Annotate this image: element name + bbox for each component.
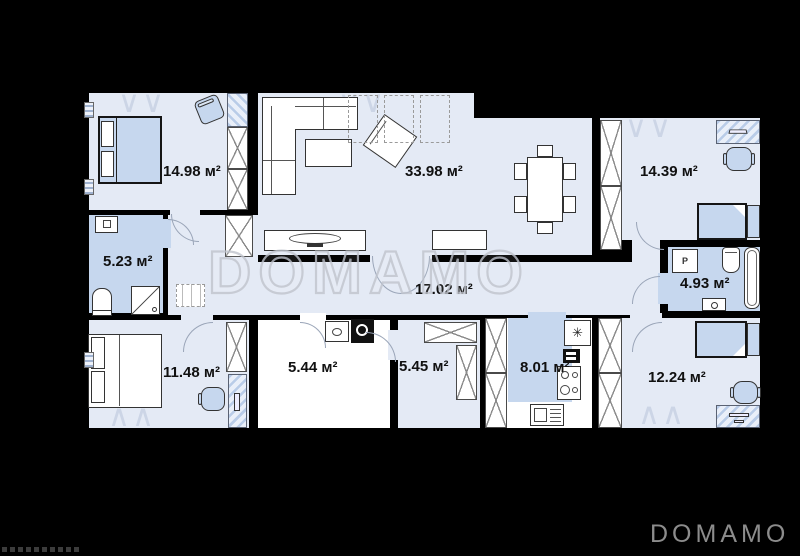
wardrobe-icon	[485, 318, 507, 373]
wardrobe-icon	[598, 318, 622, 373]
carpet-zone	[420, 95, 450, 143]
toilet-tank	[92, 310, 112, 316]
chair-icon	[514, 196, 527, 213]
wardrobe-icon	[600, 120, 622, 186]
double-bed-icon	[98, 116, 162, 184]
room-area-label: 14.39 м²	[640, 163, 698, 180]
chair-icon	[563, 196, 576, 213]
desk-icon	[228, 374, 247, 428]
fine-print-watermark	[2, 547, 80, 552]
double-bed-icon	[88, 334, 162, 408]
window-sill-hatch	[227, 93, 248, 127]
radiator-icon	[84, 352, 94, 368]
radiator-icon	[84, 102, 94, 118]
wardrobe-icon	[227, 169, 248, 210]
room-area-label: 4.93 м²	[680, 275, 729, 292]
chair-icon	[563, 163, 576, 180]
coffee-table-icon	[305, 139, 352, 167]
carpet-zone	[348, 95, 378, 143]
room-area-label: 5.45 м²	[399, 358, 448, 375]
dining-table-icon	[527, 157, 563, 222]
room-area-label: 5.44 м²	[288, 359, 337, 376]
wardrobe-icon	[600, 186, 622, 250]
watermark-text: DOMAMO	[208, 238, 530, 307]
room-area-label: 8.01 м²	[520, 359, 569, 376]
desk-icon	[716, 405, 760, 428]
bathtub-icon	[744, 247, 760, 309]
desk-icon	[716, 120, 760, 144]
chair-icon	[514, 163, 527, 180]
toilet-icon	[722, 247, 740, 273]
floor-plan: ∨∨ ∨∨ ∨∨ ∧∧ ∧∧ 14.98 м² 5.23 м²	[0, 0, 800, 556]
wardrobe-icon	[456, 345, 477, 400]
kitchen-sink-icon	[530, 404, 564, 426]
corner-sofa-icon	[262, 97, 296, 195]
office-chair-icon	[733, 381, 758, 404]
room-area-label: 33.98 м²	[405, 163, 463, 180]
washbasin-icon	[702, 298, 726, 311]
monitor-icon	[234, 393, 240, 411]
chair-icon	[537, 222, 553, 234]
boiler-sink-icon	[325, 321, 349, 342]
fridge-icon: ✳	[564, 320, 591, 346]
keyboard-icon	[729, 413, 749, 417]
door-opening	[528, 312, 566, 321]
office-chair-icon	[201, 387, 225, 411]
radiator-icon	[84, 179, 94, 195]
room-area-label: 11.48 м²	[163, 364, 220, 381]
room-area-label: 5.23 м²	[103, 253, 152, 270]
bed-pillow	[747, 323, 760, 356]
blanket-fold	[733, 205, 745, 217]
wardrobe-icon	[226, 322, 247, 372]
wardrobe-icon	[598, 373, 622, 428]
monitor-icon	[728, 129, 747, 133]
room-area-label: 14.98 м²	[163, 163, 221, 180]
shower-icon	[131, 286, 160, 315]
chair-icon	[537, 145, 553, 157]
carpet-zone	[384, 95, 414, 143]
blanket-fold	[733, 344, 745, 356]
room-area-label: 12.24 м²	[648, 369, 706, 386]
office-chair-icon	[726, 147, 752, 171]
bed-pillow	[747, 205, 760, 238]
shoe-bench-icon	[176, 284, 205, 307]
washbasin-icon	[95, 216, 118, 233]
single-bed-icon	[695, 321, 747, 358]
wardrobe-icon	[227, 127, 248, 169]
brand-logo: DOMAMO	[650, 520, 789, 549]
wardrobe-icon	[424, 322, 477, 343]
hallway-nook	[632, 247, 660, 267]
washing-machine-icon: P	[672, 249, 698, 273]
single-bed-icon	[697, 203, 747, 240]
wardrobe-icon	[485, 373, 507, 428]
